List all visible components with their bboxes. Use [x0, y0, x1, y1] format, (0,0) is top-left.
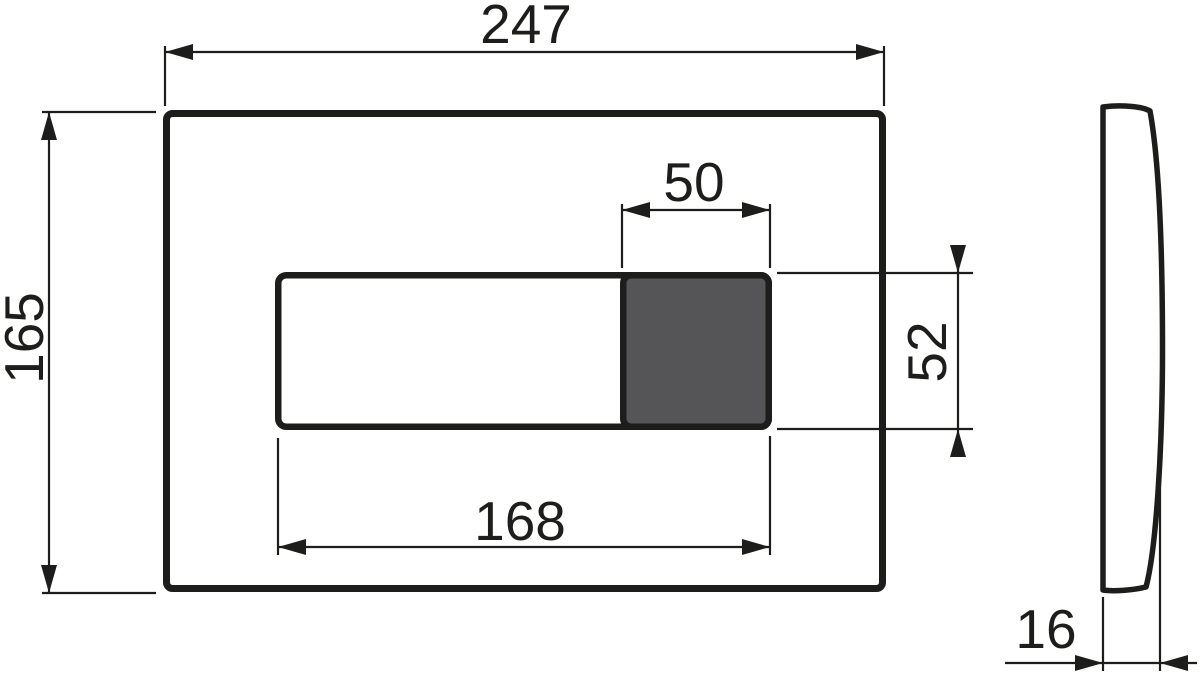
dim-label-recess-width: 168 [474, 490, 566, 552]
arrowhead-left [1075, 655, 1103, 671]
dim-label-recess-height: 52 [896, 321, 958, 382]
arrowhead-left [165, 44, 193, 60]
drawing-canvas: 247 165 50 52 [0, 0, 1200, 673]
dim-plate-height: 165 [0, 112, 156, 593]
dim-label-plate-width: 247 [480, 0, 572, 55]
side-profile [1103, 106, 1163, 591]
dim-plate-width: 247 [165, 0, 884, 106]
arrowhead-top [950, 245, 966, 273]
side-view [1103, 106, 1163, 591]
technical-drawing-page: 247 165 50 52 [0, 0, 1200, 673]
dim-label-thickness: 16 [1015, 598, 1076, 660]
arrowhead-right [1160, 655, 1188, 671]
arrowhead-top [41, 112, 57, 140]
arrowhead-bottom [41, 565, 57, 593]
dim-label-button-width: 50 [663, 151, 724, 213]
arrowhead-bottom [950, 429, 966, 457]
flush-button [623, 275, 769, 427]
dim-label-plate-height: 165 [0, 292, 55, 384]
arrowhead-right [856, 44, 884, 60]
